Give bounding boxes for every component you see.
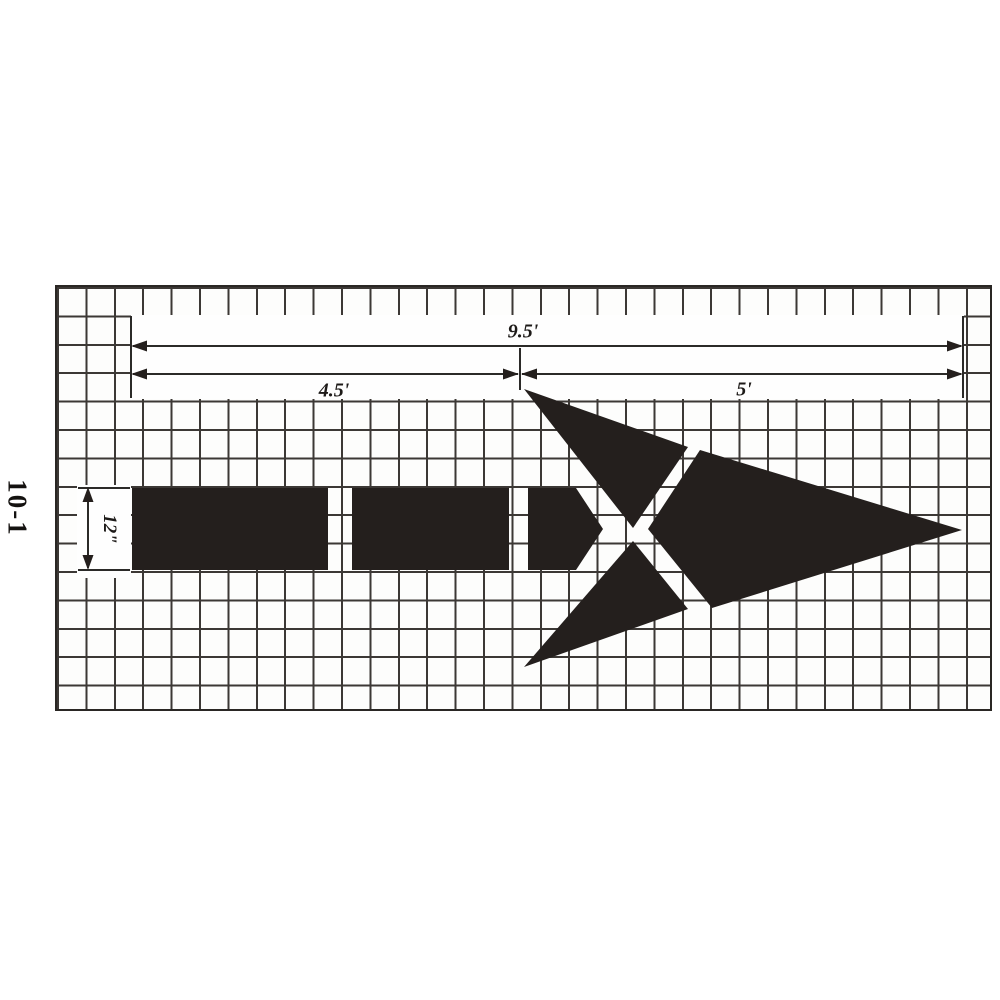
arrowhead-overall-left bbox=[131, 341, 147, 352]
arrowhead-head-left bbox=[521, 369, 537, 380]
arrowhead-overall-right bbox=[947, 341, 963, 352]
arrow-head bbox=[648, 450, 962, 608]
stencil-diagram bbox=[0, 0, 1000, 1000]
stencil-id-label: 10-1 bbox=[2, 479, 33, 537]
arrowhead-width-bottom bbox=[83, 555, 94, 570]
label-overall-length: 9.5' bbox=[508, 321, 539, 344]
label-head-length: 5' bbox=[736, 379, 752, 402]
arrow-tail-segment-2 bbox=[352, 488, 509, 570]
label-tail-length: 4.5' bbox=[319, 380, 350, 403]
arrowhead-tail-left bbox=[131, 369, 147, 380]
arrowhead-width-top bbox=[83, 487, 94, 502]
stencil-product-diagram: 9.5' 4.5' 5' 12" 10-1 bbox=[0, 0, 1000, 1000]
arrowhead-tail-right bbox=[503, 369, 519, 380]
arrow-tail-segment-1 bbox=[132, 488, 328, 570]
arrowhead-head-right bbox=[947, 369, 963, 380]
arrow-tail-segment-3-pentagon bbox=[528, 488, 603, 570]
label-stroke-width: 12" bbox=[98, 514, 120, 544]
